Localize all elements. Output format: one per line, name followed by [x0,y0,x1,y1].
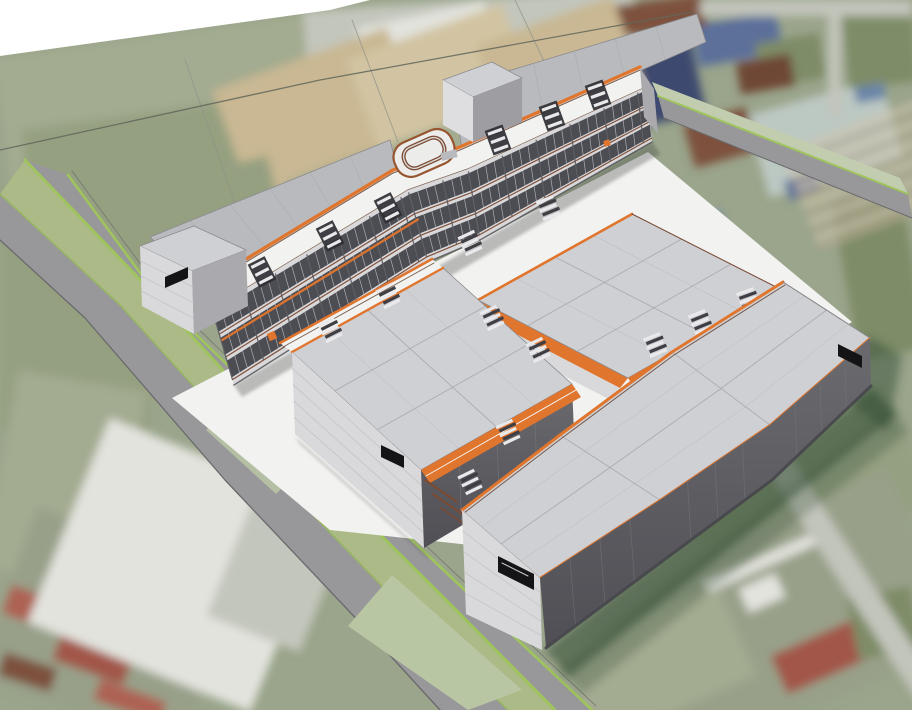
site-plan-3d-render [0,0,912,710]
viewport [0,0,912,710]
